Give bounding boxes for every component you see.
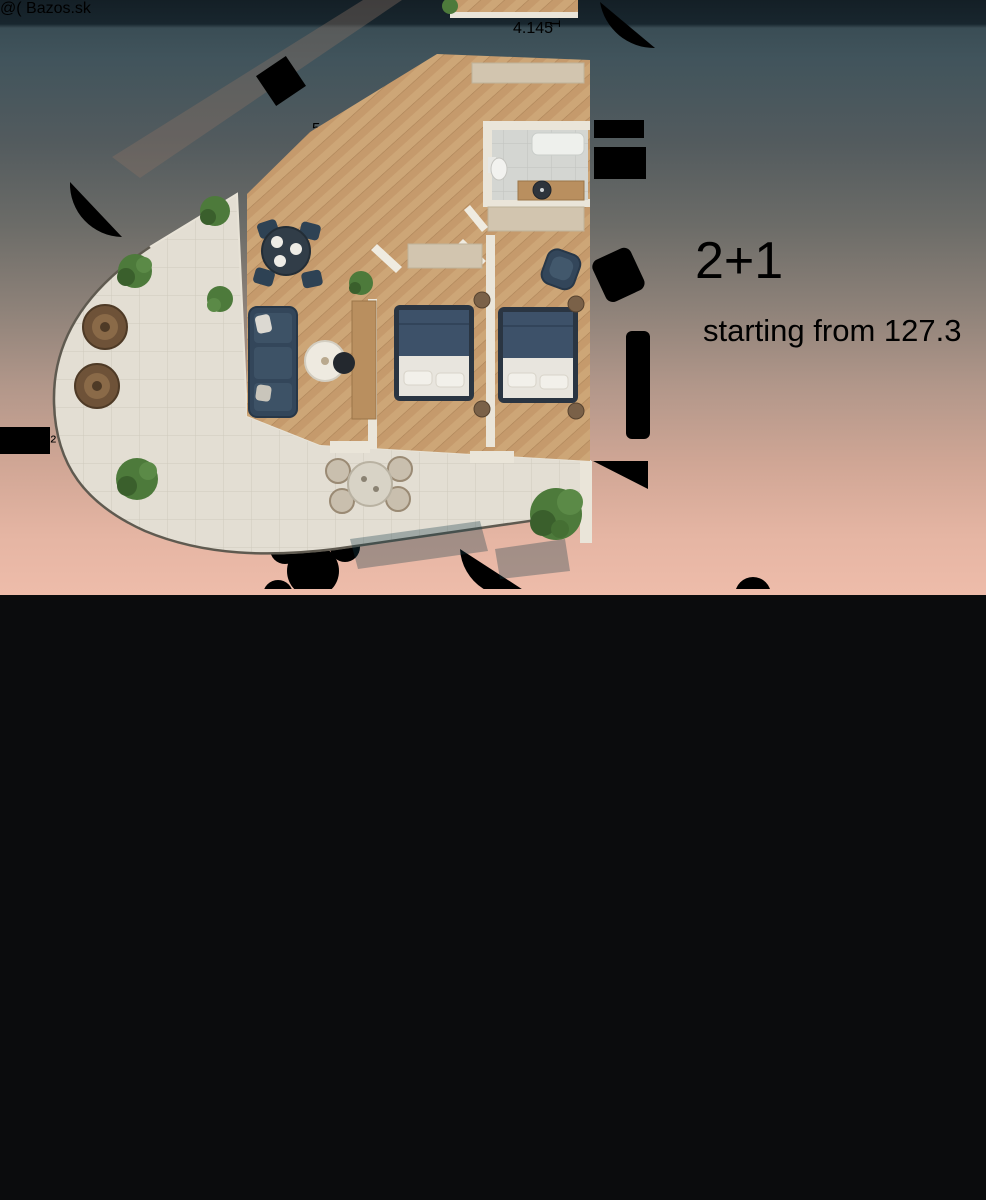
listing-photo-viewer: 1.800 800 00 2.700 9.100 — [0, 0, 986, 1200]
stool — [568, 296, 584, 312]
unit-type-label: 2+1 — [695, 231, 783, 291]
area-box-label: 3.7 m² — [8, 432, 57, 451]
bush — [530, 488, 583, 540]
floorplan-bottom-svg: 5.5 4.145 1.8 — [0, 0, 986, 589]
bush — [207, 286, 233, 312]
bush — [200, 196, 230, 226]
toilet — [491, 158, 507, 180]
bed-double — [498, 296, 584, 419]
watermark: @( Bazos.sk — [0, 0, 91, 18]
rattan-chair — [75, 364, 119, 408]
stool — [568, 403, 584, 419]
wardrobe — [472, 63, 584, 83]
bathtub — [532, 133, 584, 155]
stool — [474, 401, 490, 417]
wardrobe — [408, 244, 482, 268]
desk — [352, 301, 376, 419]
rattan-chair — [83, 305, 127, 349]
closet — [488, 207, 584, 231]
photo-floorplan-2[interactable]: 5.5 4.145 1.8 — [0, 0, 986, 594]
plant — [349, 271, 373, 295]
desk-chair — [333, 352, 355, 374]
sofa — [249, 307, 297, 417]
unit-area-label: starting from 127.3 — [703, 313, 961, 349]
bush — [116, 458, 158, 500]
stool — [474, 292, 490, 308]
bush — [117, 254, 152, 288]
bathroom — [483, 121, 590, 207]
